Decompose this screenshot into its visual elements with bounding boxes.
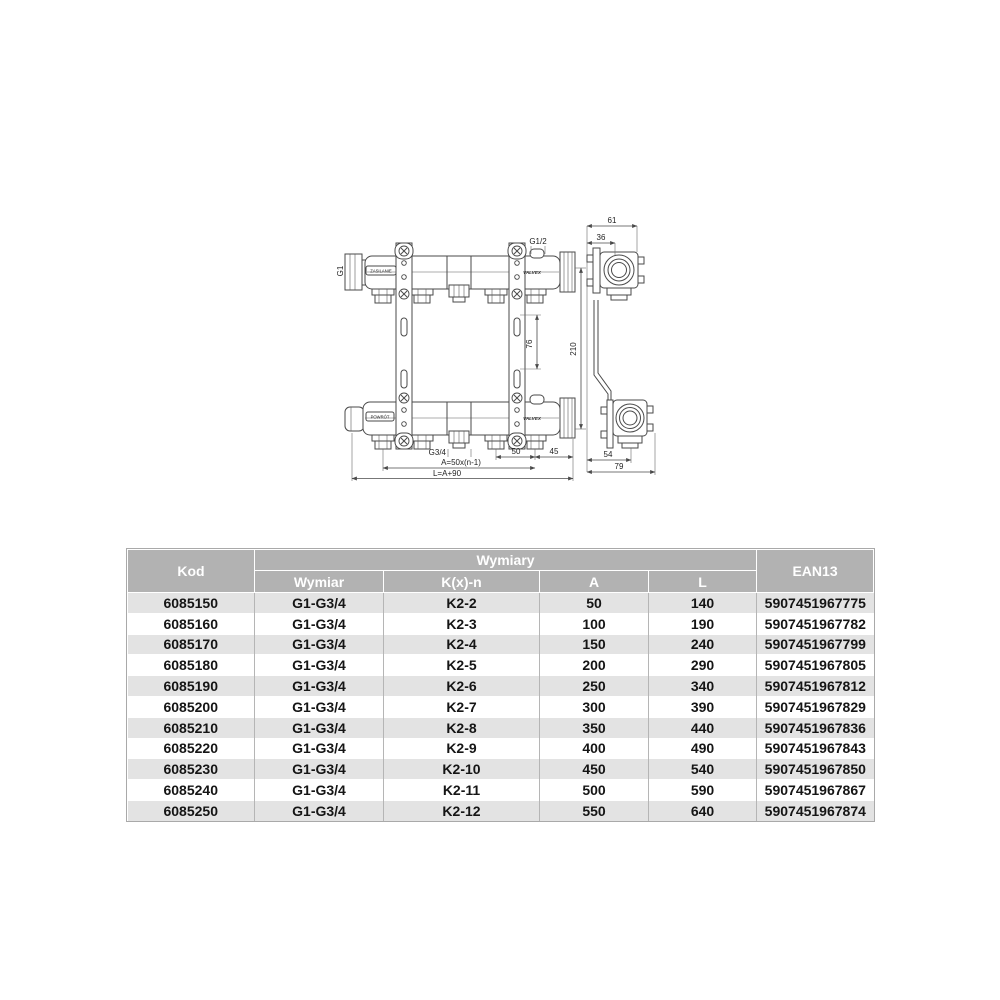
- cell-wymiar: G1-G3/4: [255, 593, 384, 614]
- table-row: 6085230G1-G3/4K2-104505405907451967850: [128, 759, 874, 780]
- cell-wymiar: G1-G3/4: [255, 696, 384, 717]
- cell-l: 290: [649, 655, 757, 676]
- cell-kxn: K2-2: [384, 593, 540, 614]
- g1-union-nut: [345, 254, 362, 290]
- cell-kod: 6085250: [128, 800, 255, 820]
- cell-a: 450: [540, 759, 649, 780]
- cell-ean: 5907451967812: [757, 676, 874, 697]
- cell-l: 540: [649, 759, 757, 780]
- dim-label-36: 36: [597, 233, 606, 242]
- cell-a: 350: [540, 717, 649, 738]
- cell-kod: 6085160: [128, 613, 255, 634]
- return-inlet-stub: [345, 407, 364, 431]
- cell-wymiar: G1-G3/4: [255, 738, 384, 759]
- cell-kod: 6085200: [128, 696, 255, 717]
- cell-kxn: K2-5: [384, 655, 540, 676]
- cell-kod: 6085230: [128, 759, 255, 780]
- table-row: 6085190G1-G3/4K2-62503405907451967812: [128, 676, 874, 697]
- g12-port-dome: [530, 249, 544, 258]
- front-view: ZASILANIE VALVEX POWRÓT VALVEX G1 G1/2 G…: [336, 237, 586, 481]
- cell-ean: 5907451967829: [757, 696, 874, 717]
- table-row: 6085250G1-G3/4K2-125506405907451967874: [128, 800, 874, 820]
- col-header-wymiar: Wymiar: [255, 571, 384, 593]
- cell-kxn: K2-8: [384, 717, 540, 738]
- table-row: 6085170G1-G3/4K2-41502405907451967799: [128, 634, 874, 655]
- return-end-cap: [560, 398, 575, 438]
- cell-wymiar: G1-G3/4: [255, 759, 384, 780]
- return-label: POWRÓT: [371, 415, 390, 420]
- cell-wymiar: G1-G3/4: [255, 676, 384, 697]
- cell-l: 340: [649, 676, 757, 697]
- brand-label-top: VALVEX: [523, 270, 542, 275]
- cell-wymiar: G1-G3/4: [255, 800, 384, 820]
- cell-l: 390: [649, 696, 757, 717]
- col-header-l: L: [649, 571, 757, 593]
- top-flange-body: [600, 252, 638, 288]
- cell-l: 440: [649, 717, 757, 738]
- table-row: 6085210G1-G3/4K2-83504405907451967836: [128, 717, 874, 738]
- cell-l: 590: [649, 780, 757, 801]
- col-header-a: A: [540, 571, 649, 593]
- cell-a: 550: [540, 800, 649, 820]
- cell-kxn: K2-6: [384, 676, 540, 697]
- cell-kod: 6085150: [128, 593, 255, 614]
- side-view: 61 36 54 79: [587, 216, 655, 475]
- dim-label-54: 54: [604, 450, 613, 459]
- table-row: 6085240G1-G3/4K2-115005905907451967867: [128, 780, 874, 801]
- cell-kxn: K2-12: [384, 800, 540, 820]
- cell-a: 100: [540, 613, 649, 634]
- cell-kod: 6085170: [128, 634, 255, 655]
- top-flange-plate: [593, 248, 600, 293]
- table-row: 6085200G1-G3/4K2-73003905907451967829: [128, 696, 874, 717]
- table-row: 6085220G1-G3/4K2-94004905907451967843: [128, 738, 874, 759]
- cell-l: 140: [649, 593, 757, 614]
- bottom-flange-body: [613, 400, 647, 436]
- col-header-kxn: K(x)-n: [384, 571, 540, 593]
- g1-label: G1: [336, 265, 345, 276]
- g12-label: G1/2: [529, 237, 547, 246]
- return-port-dome: [530, 395, 544, 404]
- cell-l: 640: [649, 800, 757, 820]
- cell-wymiar: G1-G3/4: [255, 655, 384, 676]
- cell-kxn: K2-9: [384, 738, 540, 759]
- col-header-ean13: EAN13: [757, 550, 874, 593]
- cell-l: 490: [649, 738, 757, 759]
- brand-label-bottom: VALVEX: [523, 416, 542, 421]
- dim-label-45: 45: [550, 447, 559, 456]
- center-union-bottom: [449, 431, 469, 448]
- table-row: 6085180G1-G3/4K2-52002905907451967805: [128, 655, 874, 676]
- col-header-wymiary: Wymiary: [255, 550, 757, 571]
- cell-a: 250: [540, 676, 649, 697]
- cell-ean: 5907451967805: [757, 655, 874, 676]
- cell-kxn: K2-3: [384, 613, 540, 634]
- cell-kxn: K2-4: [384, 634, 540, 655]
- dim-label-l: L=A+90: [433, 469, 462, 478]
- cell-kod: 6085180: [128, 655, 255, 676]
- cell-ean: 5907451967836: [757, 717, 874, 738]
- product-spec-table: Kod Wymiary EAN13 Wymiar K(x)-n A L 6085…: [127, 549, 874, 821]
- cell-kxn: K2-7: [384, 696, 540, 717]
- table-row: 6085150G1-G3/4K2-2501405907451967775: [128, 593, 874, 614]
- dim-label-61: 61: [608, 216, 617, 225]
- cell-wymiar: G1-G3/4: [255, 717, 384, 738]
- cell-a: 400: [540, 738, 649, 759]
- cell-wymiar: G1-G3/4: [255, 780, 384, 801]
- cell-a: 200: [540, 655, 649, 676]
- cell-ean: 5907451967850: [757, 759, 874, 780]
- cell-wymiar: G1-G3/4: [255, 613, 384, 634]
- cell-l: 240: [649, 634, 757, 655]
- col-header-kod: Kod: [128, 550, 255, 593]
- cell-wymiar: G1-G3/4: [255, 634, 384, 655]
- cell-ean: 5907451967843: [757, 738, 874, 759]
- table-row: 6085160G1-G3/4K2-31001905907451967782: [128, 613, 874, 634]
- supply-end-cap: [560, 252, 575, 292]
- bracket-left: [395, 243, 413, 449]
- manifold-technical-drawing: ZASILANIE VALVEX POWRÓT VALVEX G1 G1/2 G…: [335, 205, 695, 495]
- dim-label-50: 50: [512, 447, 521, 456]
- cell-ean: 5907451967799: [757, 634, 874, 655]
- cell-kod: 6085210: [128, 717, 255, 738]
- cell-ean: 5907451967874: [757, 800, 874, 820]
- dim-label-210: 210: [569, 342, 578, 356]
- catalog-page: { "colors": { "page_bg": "#ffffff", "hea…: [0, 0, 1000, 1000]
- cell-kxn: K2-11: [384, 780, 540, 801]
- cell-ean: 5907451967867: [757, 780, 874, 801]
- dim-label-79: 79: [615, 462, 624, 471]
- z-bracket-plate: [594, 300, 608, 402]
- cell-kod: 6085240: [128, 780, 255, 801]
- cell-ean: 5907451967775: [757, 593, 874, 614]
- cell-a: 300: [540, 696, 649, 717]
- cell-kod: 6085220: [128, 738, 255, 759]
- cell-ean: 5907451967782: [757, 613, 874, 634]
- manifold-drawing-svg: ZASILANIE VALVEX POWRÓT VALVEX G1 G1/2 G…: [335, 205, 695, 495]
- supply-label: ZASILANIE: [370, 269, 392, 274]
- cell-a: 150: [540, 634, 649, 655]
- cell-a: 50: [540, 593, 649, 614]
- g34-label: G3/4: [429, 448, 447, 457]
- cell-kod: 6085190: [128, 676, 255, 697]
- dim-label-a: A=50x(n-1): [441, 458, 481, 467]
- cell-a: 500: [540, 780, 649, 801]
- center-union-top: [449, 285, 469, 302]
- dim-label-76: 76: [525, 339, 534, 348]
- cell-kxn: K2-10: [384, 759, 540, 780]
- cell-l: 190: [649, 613, 757, 634]
- spec-table-container: Kod Wymiary EAN13 Wymiar K(x)-n A L 6085…: [126, 548, 875, 822]
